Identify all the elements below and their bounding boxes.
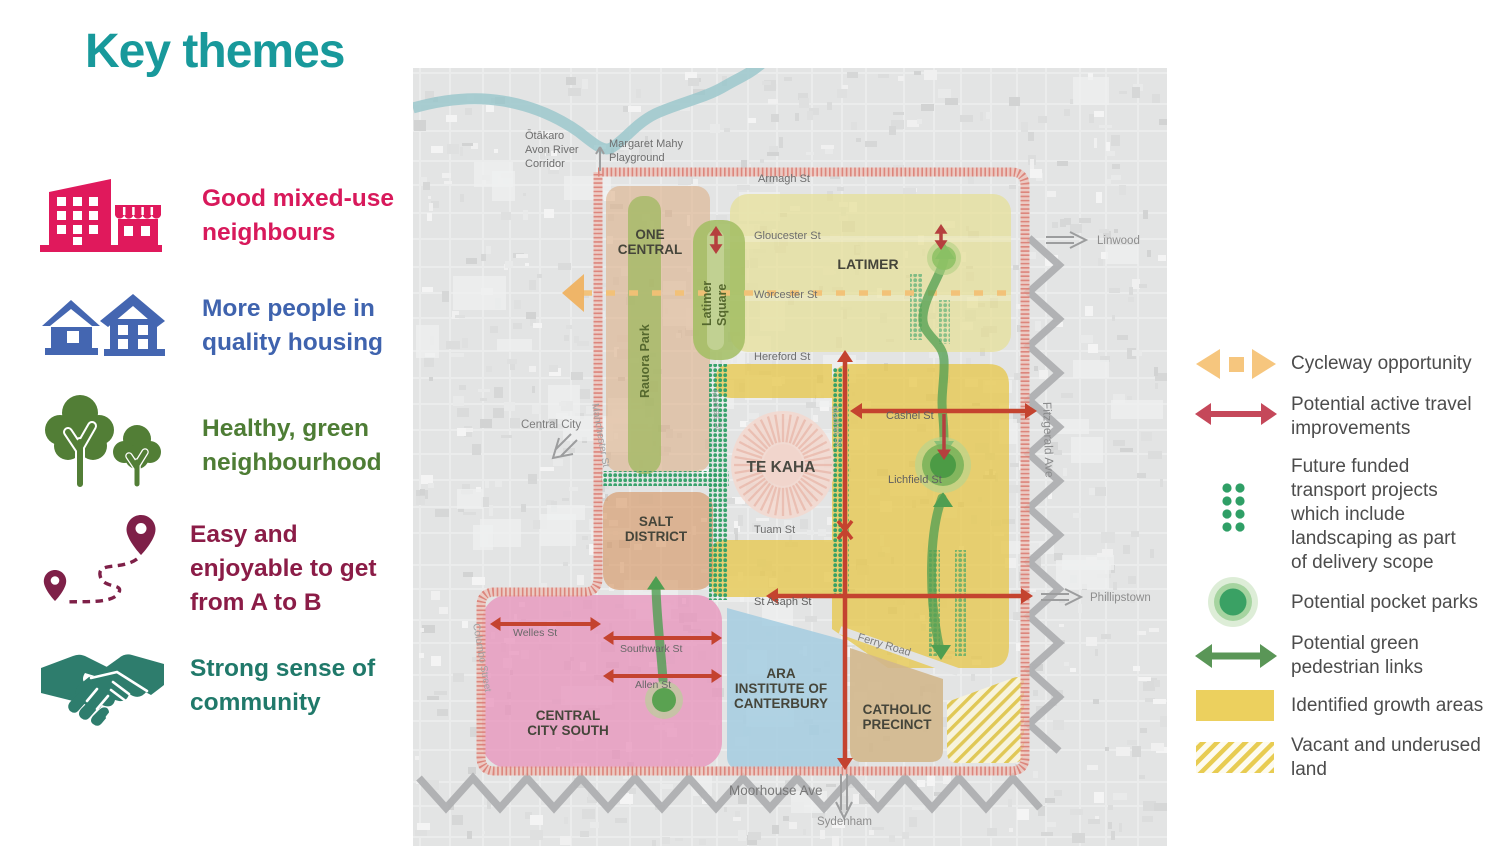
svg-text:Rauora Park: Rauora Park bbox=[638, 324, 652, 398]
svg-text:Hereford St: Hereford St bbox=[754, 351, 810, 363]
svg-text:Margaret Mahy: Margaret Mahy bbox=[609, 138, 683, 150]
svg-text:Corridor: Corridor bbox=[525, 158, 565, 170]
svg-text:CITY SOUTH: CITY SOUTH bbox=[527, 723, 609, 738]
svg-text:Fitzgerald Ave: Fitzgerald Ave bbox=[1040, 402, 1057, 479]
svg-text:Playground: Playground bbox=[609, 152, 665, 164]
svg-text:Ōtākaro: Ōtākaro bbox=[525, 130, 564, 142]
svg-text:CATHOLIC: CATHOLIC bbox=[863, 702, 932, 717]
svg-text:Central City: Central City bbox=[521, 419, 581, 431]
svg-text:Southwark St: Southwark St bbox=[620, 643, 683, 655]
svg-text:St Asaph St: St Asaph St bbox=[754, 596, 811, 608]
svg-text:CENTRAL: CENTRAL bbox=[536, 708, 601, 723]
svg-text:Linwood: Linwood bbox=[1097, 235, 1140, 247]
svg-text:ARA: ARA bbox=[766, 666, 795, 681]
svg-text:Gloucester St: Gloucester St bbox=[754, 230, 821, 242]
svg-text:Allen St: Allen St bbox=[635, 679, 671, 691]
svg-text:Armagh St: Armagh St bbox=[758, 173, 810, 185]
svg-text:Avon River: Avon River bbox=[525, 144, 579, 156]
svg-text:PRECINCT: PRECINCT bbox=[862, 717, 932, 732]
svg-text:CANTERBURY: CANTERBURY bbox=[734, 696, 828, 711]
svg-text:CENTRAL: CENTRAL bbox=[618, 242, 683, 257]
svg-text:DISTRICT: DISTRICT bbox=[625, 529, 688, 544]
svg-text:LATIMER: LATIMER bbox=[837, 256, 898, 272]
svg-text:Latimer: Latimer bbox=[700, 281, 714, 326]
svg-text:Welles St: Welles St bbox=[513, 627, 557, 639]
svg-text:ONE: ONE bbox=[635, 227, 664, 242]
svg-text:Phillipstown: Phillipstown bbox=[1090, 592, 1151, 604]
svg-text:Square: Square bbox=[715, 284, 729, 326]
svg-text:SALT: SALT bbox=[639, 514, 674, 529]
svg-text:Tuam St: Tuam St bbox=[754, 524, 795, 536]
svg-text:TE KAHA: TE KAHA bbox=[747, 459, 816, 476]
svg-text:INSTITUTE OF: INSTITUTE OF bbox=[735, 681, 827, 696]
svg-text:Worcester St: Worcester St bbox=[754, 289, 817, 301]
svg-text:Cashel St: Cashel St bbox=[886, 410, 934, 422]
svg-text:Moorhouse Ave: Moorhouse Ave bbox=[729, 783, 823, 798]
svg-text:Sydenham: Sydenham bbox=[817, 816, 872, 828]
svg-text:Lichfield St: Lichfield St bbox=[888, 474, 942, 486]
